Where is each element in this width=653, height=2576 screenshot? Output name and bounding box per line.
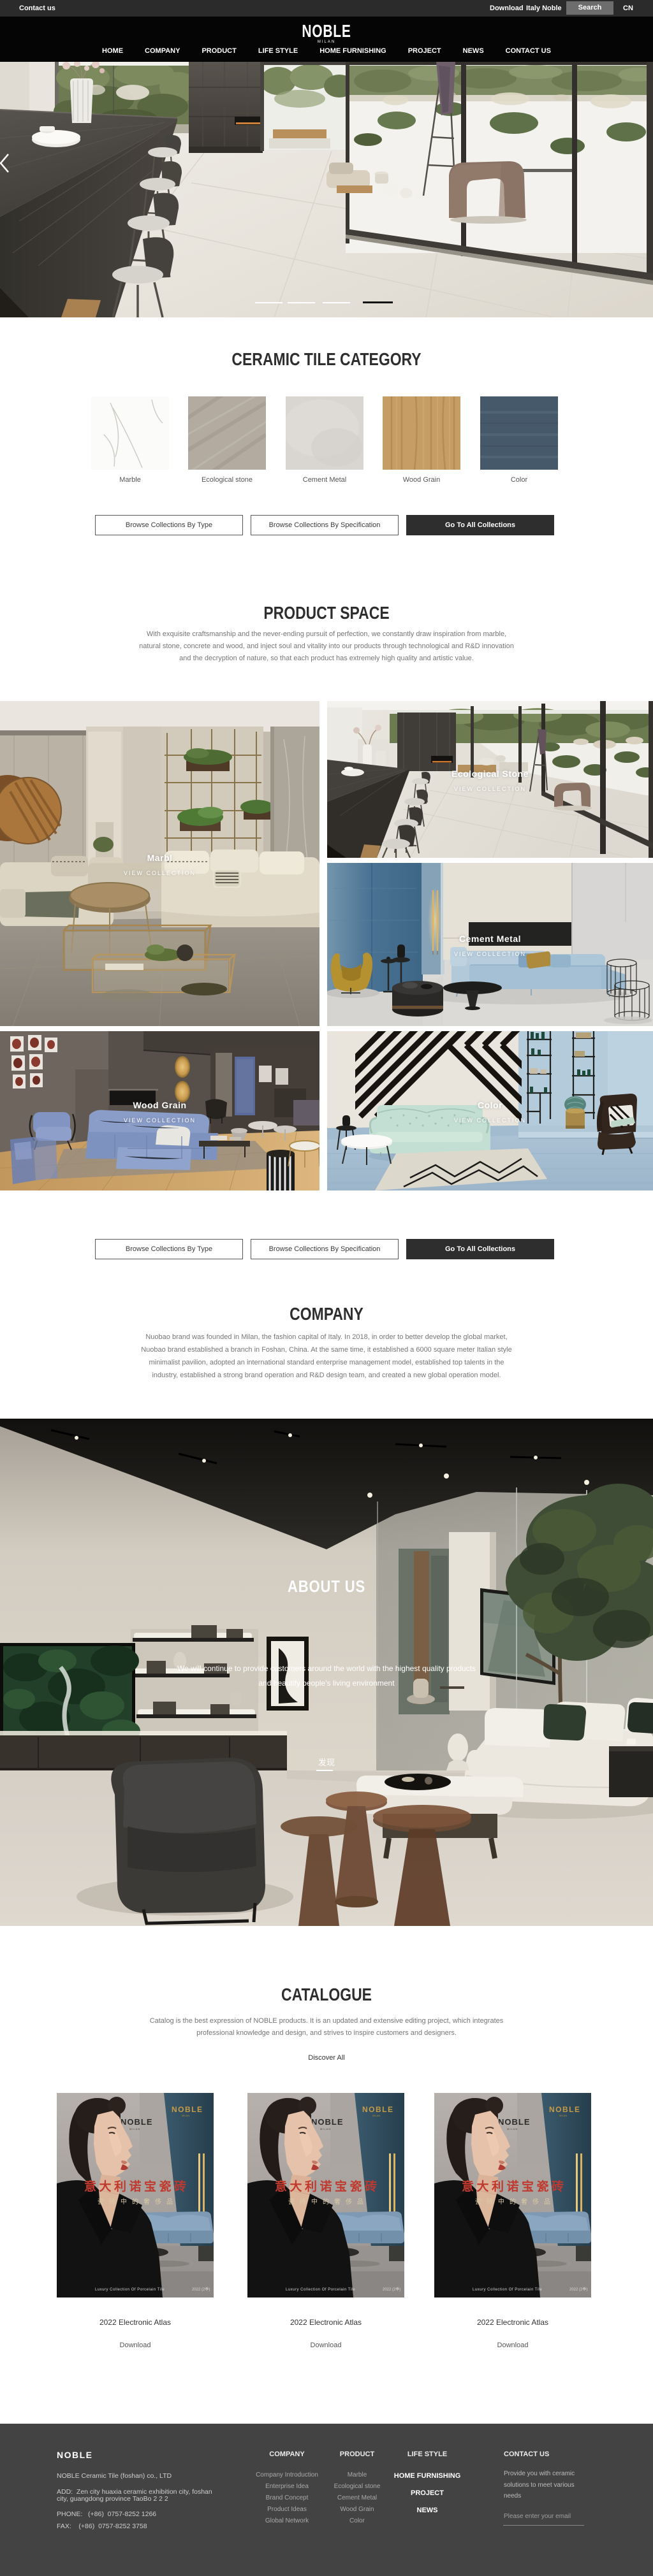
- svg-text:NOBLE: NOBLE: [121, 2117, 153, 2127]
- svg-text:意大利诺宝瓷砖: 意大利诺宝瓷砖: [462, 2179, 567, 2194]
- svg-text:2022 (2季): 2022 (2季): [192, 2287, 210, 2292]
- svg-text:NOBLE: NOBLE: [362, 2105, 394, 2114]
- svg-text:2022 (2季): 2022 (2季): [383, 2287, 400, 2292]
- svg-text:MILAN: MILAN: [559, 2114, 567, 2117]
- svg-text:MILAN: MILAN: [320, 2127, 331, 2131]
- svg-text:意大利诺宝瓷砖: 意大利诺宝瓷砖: [275, 2179, 380, 2194]
- svg-text:MILAN: MILAN: [182, 2114, 189, 2117]
- svg-text:Luxury Collection Of Porcelain: Luxury Collection Of Porcelain Tile: [95, 2288, 165, 2292]
- svg-text:NOBLE: NOBLE: [549, 2105, 581, 2114]
- svg-text:NOBLE: NOBLE: [498, 2117, 531, 2127]
- svg-text:瓷砖中的奢侈品: 瓷砖中的奢侈品: [288, 2197, 369, 2206]
- svg-text:Luxury Collection Of Porcelain: Luxury Collection Of Porcelain Tile: [286, 2288, 355, 2292]
- svg-text:瓷砖中的奢侈品: 瓷砖中的奢侈品: [98, 2197, 178, 2206]
- svg-text:MILAN: MILAN: [507, 2127, 518, 2131]
- svg-text:MILAN: MILAN: [129, 2127, 140, 2131]
- svg-text:2022 (2季): 2022 (2季): [569, 2287, 587, 2292]
- svg-text:瓷砖中的奢侈品: 瓷砖中的奢侈品: [475, 2197, 555, 2206]
- svg-text:Luxury Collection Of Porcelain: Luxury Collection Of Porcelain Tile: [473, 2288, 542, 2292]
- svg-text:意大利诺宝瓷砖: 意大利诺宝瓷砖: [84, 2179, 189, 2194]
- svg-text:NOBLE: NOBLE: [311, 2117, 344, 2127]
- svg-text:NOBLE: NOBLE: [172, 2105, 203, 2114]
- svg-text:MILAN: MILAN: [372, 2114, 380, 2117]
